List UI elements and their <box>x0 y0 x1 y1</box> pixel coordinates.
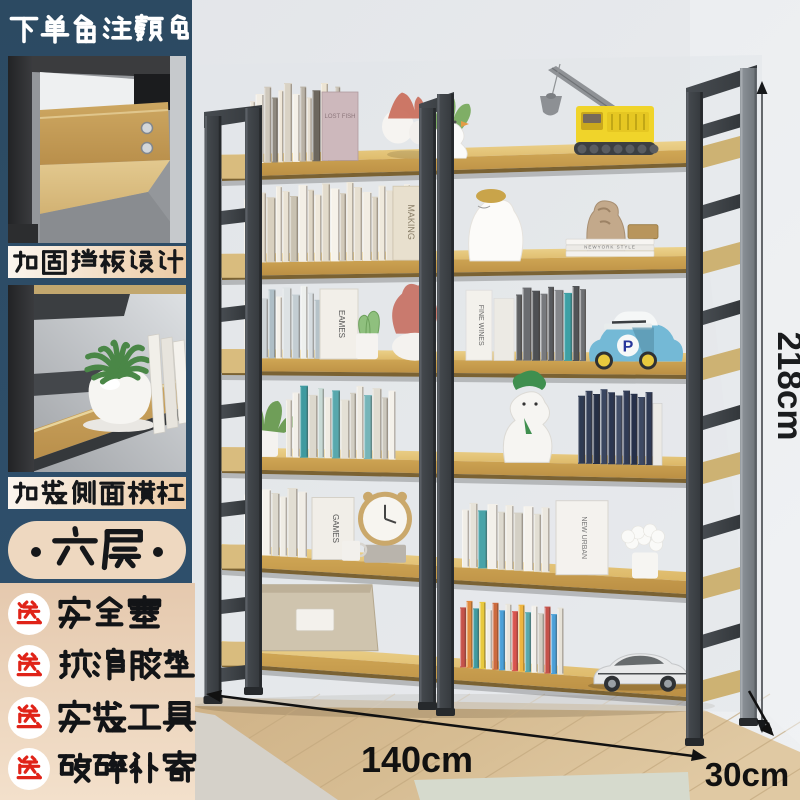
svg-text:218cm: 218cm <box>770 332 800 441</box>
svg-text:LOST FISH: LOST FISH <box>325 114 356 120</box>
svg-text:EAMES: EAMES <box>337 310 346 338</box>
svg-text:140cm: 140cm <box>361 739 473 780</box>
svg-text:FINE WINES: FINE WINES <box>477 305 484 346</box>
svg-text:P: P <box>623 339 634 356</box>
svg-text:GAMES: GAMES <box>331 514 340 543</box>
svg-text:NEWYORK STYLE: NEWYORK STYLE <box>584 245 636 250</box>
svg-text:MAKING: MAKING <box>406 204 416 240</box>
svg-text:30cm: 30cm <box>705 756 789 793</box>
svg-text:NEW URBAN: NEW URBAN <box>580 516 587 559</box>
